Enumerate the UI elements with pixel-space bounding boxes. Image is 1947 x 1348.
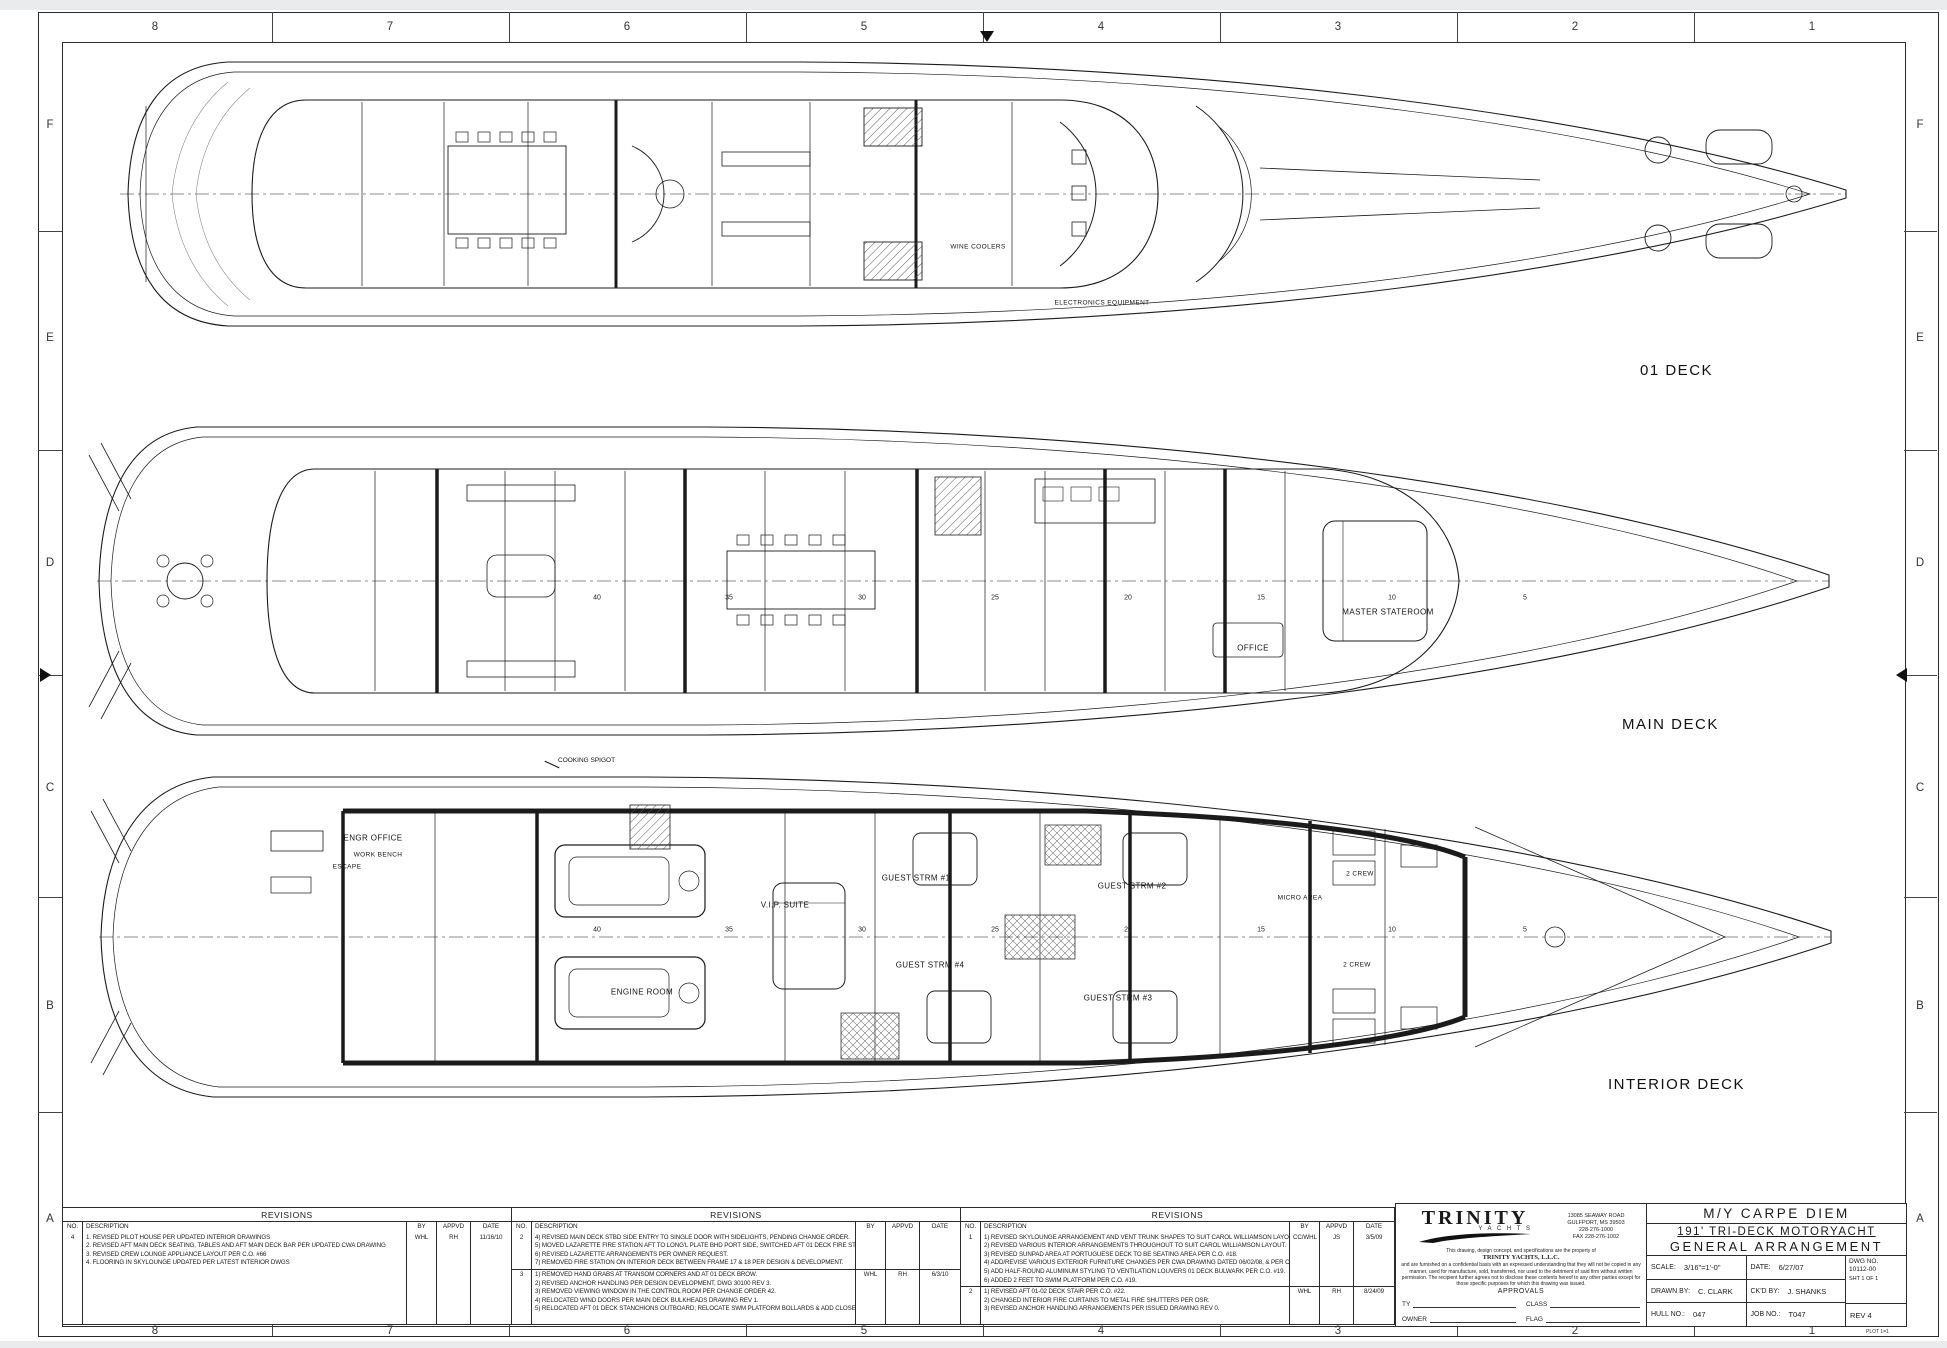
legal-notice: This drawing, design concept, and specif…	[1396, 1247, 1646, 1288]
zone-tick	[746, 12, 747, 42]
rev-col-date: DATE	[1354, 1222, 1394, 1233]
rev-filler-cell	[407, 1269, 437, 1324]
zone-tick	[1904, 450, 1937, 451]
zone-tick	[746, 1325, 747, 1336]
zone-tick	[38, 1112, 62, 1113]
zone-tick	[1904, 231, 1937, 232]
rev-col-appvd: APPVD	[886, 1222, 920, 1233]
zone-letter: E	[1916, 332, 1924, 344]
rev-description: 1) REVISED AFT 01-02 DECK STAIR PER C.O.…	[981, 1287, 1290, 1315]
plot-note: PLOT 1=1	[1866, 1329, 1889, 1335]
frame-station-number: 15	[1257, 927, 1265, 934]
main-deck-label: MAIN DECK	[1622, 716, 1719, 733]
zone-tick	[1457, 12, 1458, 42]
rev-filler-cell	[471, 1269, 511, 1324]
rev-date: 11/16/10	[471, 1233, 511, 1269]
rev-by	[856, 1233, 886, 1269]
rev-date	[920, 1233, 960, 1269]
revisions-title: REVISIONS	[512, 1208, 960, 1222]
hull-no-field: HULL NO.:047	[1647, 1303, 1747, 1326]
rev-description: 1) REVISED SKYLOUNGE ARRANGEMENT AND VEN…	[981, 1233, 1290, 1287]
title-block-drawing-panel: M/Y CARPE DIEM 191' TRI-DECK MOTORYACHT …	[1647, 1204, 1906, 1326]
trinity-logo: TRINITY Y A C H T S	[1400, 1207, 1550, 1246]
company-address: 13085 SEAWAY ROAD GULFPORT, MS 39503 228…	[1550, 1213, 1642, 1241]
drawn-by-label: DRAWN BY:	[1651, 1288, 1690, 1295]
signature-line	[1550, 1300, 1640, 1308]
rev-field: REV 4	[1846, 1303, 1906, 1326]
revision-line: 4) ADD/REVISE VARIOUS EXTERIOR FURNITURE…	[984, 1259, 1286, 1268]
rev-no: 1	[961, 1233, 981, 1287]
revision-line: 3) REMOVED VIEWING WINDOW IN THE CONTROL…	[535, 1288, 852, 1297]
trinity-logo-swoosh-icon	[1415, 1232, 1535, 1244]
signature-line	[1413, 1300, 1516, 1308]
room-label-guest-strm-4: GUEST STRM #4	[896, 961, 965, 970]
drawing-title: GENERAL ARRANGEMENT	[1647, 1239, 1906, 1254]
rev-no: 4	[63, 1233, 83, 1269]
zone-letter: D	[46, 557, 54, 569]
dwg-no-value: 10112-00	[1849, 1266, 1903, 1274]
zone-tick	[38, 897, 62, 898]
approval-label: FLAG	[1526, 1316, 1543, 1323]
frame-station-number: 30	[858, 595, 866, 602]
zone-number: 1	[1809, 21, 1815, 33]
approval-label: TY	[1402, 1301, 1410, 1308]
zone-tick	[38, 231, 62, 232]
approval-class: CLASS	[1526, 1297, 1640, 1307]
checked-by-field: CK'D BY:J. SHANKS	[1747, 1280, 1846, 1303]
zone-tick	[509, 1325, 510, 1336]
rev-by: CC/WHL	[1290, 1233, 1320, 1287]
top-margin	[0, 0, 1947, 10]
zone-letter: C	[1916, 782, 1924, 794]
rev-appvd	[886, 1233, 920, 1269]
drawing-sheet: 87654321 87654321 FEDCBA FEDCBA	[0, 0, 1947, 1348]
zone-letter: F	[1916, 119, 1923, 131]
job-no-value: T047	[1788, 1310, 1805, 1319]
rev-col-by: BY	[1290, 1222, 1320, 1233]
revision-line: 5) ADD HALF-ROUND ALUMINUM STYLING TO VE…	[984, 1268, 1286, 1277]
room-label-engine-room: ENGINE ROOM	[611, 988, 673, 997]
frame-station-number: 25	[991, 595, 999, 602]
frame-station-number: 35	[725, 595, 733, 602]
zone-number: 5	[861, 1325, 867, 1337]
revisions-title: REVISIONS	[961, 1208, 1394, 1222]
revision-line: 2) CHANGED INTERIOR FIRE CURTAINS TO MET…	[984, 1297, 1286, 1306]
rev-appvd: RH	[886, 1270, 920, 1315]
scale-value: 3/16"=1'-0"	[1684, 1263, 1721, 1272]
rev-date: 6/3/10	[920, 1270, 960, 1315]
interior-deck-plan-drawing	[85, 765, 1865, 1109]
approval-label: CLASS	[1526, 1301, 1547, 1308]
rev-date: 8/24/09	[1354, 1287, 1394, 1315]
job-no-label: JOB NO.:	[1751, 1311, 1781, 1318]
frame-station-number: 15	[1257, 595, 1265, 602]
frame-station-number: 20	[1124, 595, 1132, 602]
zone-letter: C	[46, 782, 54, 794]
rev-col-appvd: APPVD	[437, 1222, 471, 1233]
date-value: 6/27/07	[1779, 1263, 1804, 1272]
room-label-escape: ESCAPE	[333, 864, 362, 871]
title-block: TRINITY Y A C H T S 13085 SEAWAY ROAD GU…	[1395, 1203, 1907, 1327]
revision-line: 4) REVISED MAIN DECK STBD SIDE ENTRY TO …	[535, 1234, 852, 1243]
revisions-table-3: REVISIONSNO.DESCRIPTIONBYAPPVDDATE11) RE…	[960, 1207, 1395, 1325]
revision-line: 4. FLOORING IN SKYLOUNGE UPDATED PER LAT…	[86, 1259, 403, 1268]
zone-tick	[272, 12, 273, 42]
rev-no: 2	[512, 1233, 532, 1269]
rev-filler-cell	[1320, 1315, 1354, 1324]
frame-station-number: 35	[725, 927, 733, 934]
revision-line: 3. REVISED CREW LOUNGE APPLIANCE LAYOUT …	[86, 1251, 403, 1260]
rev-by: WHL	[1290, 1287, 1320, 1315]
frame-station-number: 10	[1388, 595, 1396, 602]
revision-line: 3) REVISED ANCHOR HANDLING ARRANGEMENTS …	[984, 1305, 1286, 1314]
room-label-2-crew-aft: 2 CREW	[1343, 962, 1371, 969]
zone-number: 3	[1335, 1325, 1341, 1337]
frame-station-number: 30	[858, 927, 866, 934]
rev-filler-cell	[961, 1315, 981, 1324]
address-line: FAX 228-276-1002	[1550, 1234, 1642, 1241]
revision-line: 6) REVISED LAZARETTE ARRANGEMENTS PER OW…	[535, 1251, 852, 1260]
approval-flag: FLAG	[1526, 1313, 1640, 1323]
scale-label: SCALE:	[1651, 1264, 1676, 1271]
interior-deck-label: INTERIOR DECK	[1608, 1076, 1745, 1093]
address-line: 228-276-1000	[1550, 1227, 1642, 1234]
rev-no: 2	[961, 1287, 981, 1315]
zone-number: 3	[1335, 21, 1341, 33]
hull-no-value: 047	[1693, 1310, 1706, 1319]
rev-col-description: DESCRIPTION	[83, 1222, 407, 1233]
dwg-no-label: DWG NO.	[1849, 1258, 1903, 1266]
zone-tick	[272, 1325, 273, 1336]
rev-col-date: DATE	[920, 1222, 960, 1233]
room-label-office: OFFICE	[1237, 644, 1269, 653]
rev-filler-cell	[512, 1315, 532, 1324]
rev-filler-cell	[1290, 1315, 1320, 1324]
zone-number: 8	[152, 21, 158, 33]
revision-line: 5) RELOCATED AFT 01 DECK STANCHIONS OUTB…	[535, 1305, 852, 1314]
room-label-work-bench: WORK BENCH	[354, 852, 403, 859]
revisions-table-2: REVISIONSNO.DESCRIPTIONBYAPPVDDATE24) RE…	[511, 1207, 961, 1325]
rev-filler-cell	[856, 1315, 886, 1324]
approval-owner: OWNER	[1402, 1313, 1516, 1323]
revision-line: 1) REVISED SKYLOUNGE ARRANGEMENT AND VEN…	[984, 1234, 1286, 1243]
approval-ty: TY	[1402, 1297, 1516, 1307]
sheet-number: SHT 1 OF 1	[1849, 1275, 1903, 1283]
rev-by: WHL	[856, 1270, 886, 1315]
room-label-wine-coolers: WINE COOLERS	[950, 244, 1005, 251]
date-label: DATE:	[1751, 1264, 1771, 1271]
vessel-name: M/Y CARPE DIEM	[1647, 1206, 1906, 1224]
vessel-type: 191' TRI-DECK MOTORYACHT	[1647, 1226, 1906, 1238]
rev-no: 3	[512, 1270, 532, 1315]
legal-intro: This drawing, design concept, and specif…	[1446, 1248, 1596, 1254]
rev-appvd: RH	[437, 1233, 471, 1269]
zone-letter: B	[46, 1000, 54, 1012]
rev-filler-cell	[920, 1315, 960, 1324]
approvals-section: APPROVALS TY CLASS OWNER FLAG	[1396, 1288, 1646, 1326]
revisions-title: REVISIONS	[63, 1208, 511, 1222]
rev-col-by: BY	[407, 1222, 437, 1233]
frame-station-number: 40	[593, 927, 601, 934]
rev-col-by: BY	[856, 1222, 886, 1233]
room-label-2-crew-fwd: 2 CREW	[1346, 871, 1374, 878]
revision-line: 1. REVISED PILOT HOUSE PER UPDATED INTER…	[86, 1234, 403, 1243]
hull-no-label: HULL NO.:	[1651, 1311, 1685, 1318]
zone-letter: D	[1916, 557, 1924, 569]
frame-station-number: 20	[1124, 927, 1132, 934]
zone-tick	[1904, 675, 1937, 676]
revision-line: 2. REVISED AFT MAIN DECK SEATING, TABLES…	[86, 1242, 403, 1251]
cooking-spigot-callout: COOKING SPIGOT	[558, 757, 615, 764]
zone-number: 5	[861, 21, 867, 33]
revision-line: 7) REMOVED FIRE STATION ON INTERIOR DECK…	[535, 1259, 852, 1268]
rev-col-description: DESCRIPTION	[981, 1222, 1290, 1233]
rev-date: 3/5/09	[1354, 1233, 1394, 1287]
signature-line	[1546, 1315, 1640, 1323]
job-no-field: JOB NO.:T047	[1747, 1303, 1846, 1326]
rev-filler-cell	[981, 1315, 1290, 1324]
frame-station-number: 25	[991, 927, 999, 934]
rev-appvd: JS	[1320, 1233, 1354, 1287]
zone-number: 4	[1098, 1325, 1104, 1337]
zone-number: 8	[152, 1325, 158, 1337]
rev-filler-cell	[437, 1269, 471, 1324]
zone-tick	[1904, 897, 1937, 898]
revision-line: 2) REVISED ANCHOR HANDLING PER DESIGN DE…	[535, 1280, 852, 1289]
room-label-engr-office: ENGR OFFICE	[343, 834, 402, 843]
drawn-by-value: C. CLARK	[1698, 1287, 1733, 1296]
drawn-by-field: DRAWN BY:C. CLARK	[1647, 1280, 1747, 1303]
deck01-plan-drawing	[110, 48, 1855, 340]
zone-tick	[1904, 1112, 1937, 1113]
rev-filler-cell	[63, 1269, 83, 1324]
room-label-vip-suite: V.I.P. SUITE	[761, 901, 809, 910]
revision-line: 3) REVISED SUNPAD AREA AT PORTUGUESE DEC…	[984, 1251, 1286, 1260]
room-label-master-stateroom: MASTER STATEROOM	[1342, 608, 1433, 617]
rev-col-no: NO.	[63, 1222, 83, 1233]
room-label-electronics-equipment: ELECTRONICS EQUIPMENT	[1054, 300, 1149, 307]
legal-body: and are furnished on a confidential basi…	[1401, 1262, 1641, 1287]
signature-line	[1430, 1315, 1516, 1323]
frame-station-number: 5	[1523, 927, 1527, 934]
scale-field: SCALE:3/16"=1'-0"	[1647, 1256, 1747, 1279]
revision-line: 4) RELOCATED WIND DOORS PER MAIN DECK BU…	[535, 1297, 852, 1306]
rev-filler-cell	[83, 1269, 407, 1324]
rev-col-no: NO.	[512, 1222, 532, 1233]
main-deck-plan-drawing	[85, 415, 1865, 749]
approval-label: OWNER	[1402, 1316, 1427, 1323]
rev-filler-cell	[532, 1315, 856, 1324]
revision-line: 1) REMOVED HAND GRABS AT TRANSOM CORNERS…	[535, 1271, 852, 1280]
rev-by: WHL	[407, 1233, 437, 1269]
right-center-arrow	[1896, 668, 1907, 682]
zone-tick	[1220, 12, 1221, 42]
revision-line: 5) MOVED LAZARETTE FIRE STATION AFT TO L…	[535, 1242, 852, 1251]
room-label-guest-strm-3: GUEST STRM #3	[1084, 994, 1153, 1003]
frame-station-number: 10	[1388, 927, 1396, 934]
address-line: 13085 SEAWAY ROAD	[1550, 1213, 1642, 1220]
zone-letter: B	[1916, 1000, 1924, 1012]
zone-letter: A	[46, 1213, 54, 1225]
zone-number: 6	[624, 21, 630, 33]
checked-by-label: CK'D BY:	[1751, 1288, 1780, 1295]
zone-number: 4	[1098, 21, 1104, 33]
zone-tick	[983, 1325, 984, 1336]
left-center-arrow	[40, 668, 51, 682]
revisions-table-1: REVISIONSNO.DESCRIPTIONBYAPPVDDATE41. RE…	[62, 1207, 512, 1325]
rev-description: 1) REMOVED HAND GRABS AT TRANSOM CORNERS…	[532, 1270, 856, 1315]
zone-tick	[1694, 12, 1695, 42]
zone-number: 2	[1572, 21, 1578, 33]
rev-filler-cell	[886, 1315, 920, 1324]
date-field: DATE:6/27/07	[1747, 1256, 1846, 1279]
dwg-no-field: DWG NO. 10112-00 SHT 1 OF 1	[1846, 1256, 1906, 1303]
title-block-company-panel: TRINITY Y A C H T S 13085 SEAWAY ROAD GU…	[1396, 1204, 1647, 1326]
zone-letter: A	[1916, 1213, 1924, 1225]
revision-line: 6) ADDED 2 FEET TO SWIM PLATFORM PER C.O…	[984, 1277, 1286, 1286]
top-center-arrow	[980, 31, 994, 42]
zone-letter: F	[46, 119, 53, 131]
room-label-guest-strm-2: GUEST STRM #2	[1098, 882, 1167, 891]
checked-by-value: J. SHANKS	[1787, 1287, 1826, 1296]
rev-col-no: NO.	[961, 1222, 981, 1233]
zone-number: 6	[624, 1325, 630, 1337]
frame-station-number: 5	[1523, 595, 1527, 602]
rev-col-description: DESCRIPTION	[532, 1222, 856, 1233]
approvals-title: APPROVALS	[1402, 1288, 1640, 1295]
zone-number: 7	[387, 21, 393, 33]
zone-number: 7	[387, 1325, 393, 1337]
rev-appvd: RH	[1320, 1287, 1354, 1315]
room-label-guest-strm-1: GUEST STRM #1	[882, 874, 951, 883]
zone-letter: E	[46, 332, 54, 344]
room-label-micro-area: MICRO AREA	[1278, 895, 1323, 902]
zone-tick	[38, 450, 62, 451]
legal-company-name: TRINITY YACHTS, L.L.C.	[1401, 1255, 1641, 1261]
zone-tick	[509, 12, 510, 42]
revision-line: 1) REVISED AFT 01-02 DECK STAIR PER C.O.…	[984, 1288, 1286, 1297]
bottom-margin	[0, 1341, 1947, 1348]
deck01-label: 01 DECK	[1640, 362, 1713, 379]
rev-col-date: DATE	[471, 1222, 511, 1233]
rev-filler-cell	[1354, 1315, 1394, 1324]
rev-description: 4) REVISED MAIN DECK STBD SIDE ENTRY TO …	[532, 1233, 856, 1269]
frame-station-number: 40	[593, 595, 601, 602]
rev-col-appvd: APPVD	[1320, 1222, 1354, 1233]
rev-description: 1. REVISED PILOT HOUSE PER UPDATED INTER…	[83, 1233, 407, 1269]
revisions-region: REVISIONSNO.DESCRIPTIONBYAPPVDDATE41. RE…	[62, 1207, 1395, 1325]
address-line: GULFPORT, MS 39503	[1550, 1220, 1642, 1227]
zone-tick	[1220, 1325, 1221, 1336]
revision-line: 2) REVISED VARIOUS INTERIOR ARRANGEMENTS…	[984, 1242, 1286, 1251]
